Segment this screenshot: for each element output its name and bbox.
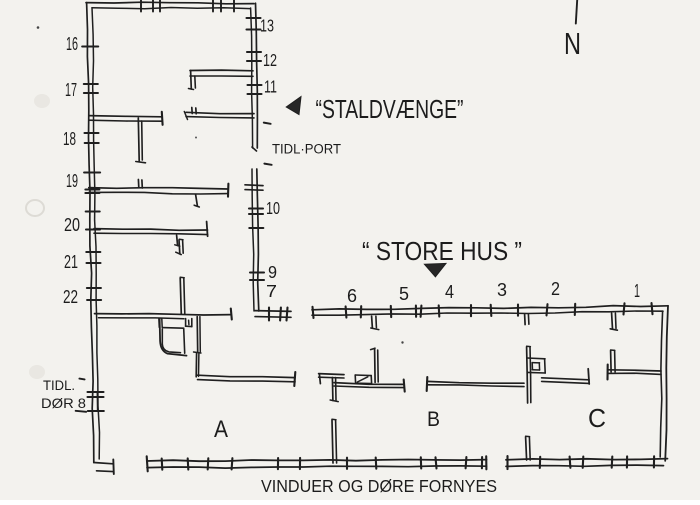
svg-text:10: 10: [266, 198, 280, 218]
svg-text:22: 22: [63, 286, 78, 307]
svg-text:N: N: [564, 26, 581, 61]
svg-text:DØR 8: DØR 8: [41, 395, 86, 411]
svg-text:11: 11: [264, 77, 277, 97]
svg-text:A: A: [214, 416, 228, 443]
svg-text:21: 21: [64, 251, 78, 272]
svg-text:5: 5: [399, 284, 409, 304]
svg-text:12: 12: [263, 50, 277, 70]
svg-text:“STALDVÆNGE”: “STALDVÆNGE”: [316, 94, 464, 124]
svg-text:17: 17: [65, 79, 77, 100]
svg-text:2: 2: [551, 279, 560, 299]
svg-text:“ STORE HUS ”: “ STORE HUS ”: [362, 236, 522, 266]
svg-text:C: C: [588, 403, 606, 433]
svg-text:6: 6: [347, 286, 357, 306]
svg-text:13: 13: [260, 16, 274, 36]
svg-text:TIDL·PORT: TIDL·PORT: [272, 142, 341, 157]
svg-text:7: 7: [266, 281, 277, 301]
svg-text:VINDUER OG DØRE FORNYES: VINDUER OG DØRE FORNYES: [261, 476, 497, 496]
svg-text:20: 20: [64, 214, 80, 235]
svg-text:B: B: [427, 408, 440, 431]
svg-text:18: 18: [63, 128, 76, 149]
svg-text:19: 19: [66, 170, 78, 191]
svg-text:16: 16: [66, 33, 78, 54]
svg-text:TIDL.: TIDL.: [43, 378, 75, 393]
svg-text:3: 3: [497, 280, 507, 300]
svg-text:1: 1: [634, 281, 640, 301]
svg-text:9: 9: [268, 262, 277, 282]
svg-text:4: 4: [445, 282, 454, 302]
